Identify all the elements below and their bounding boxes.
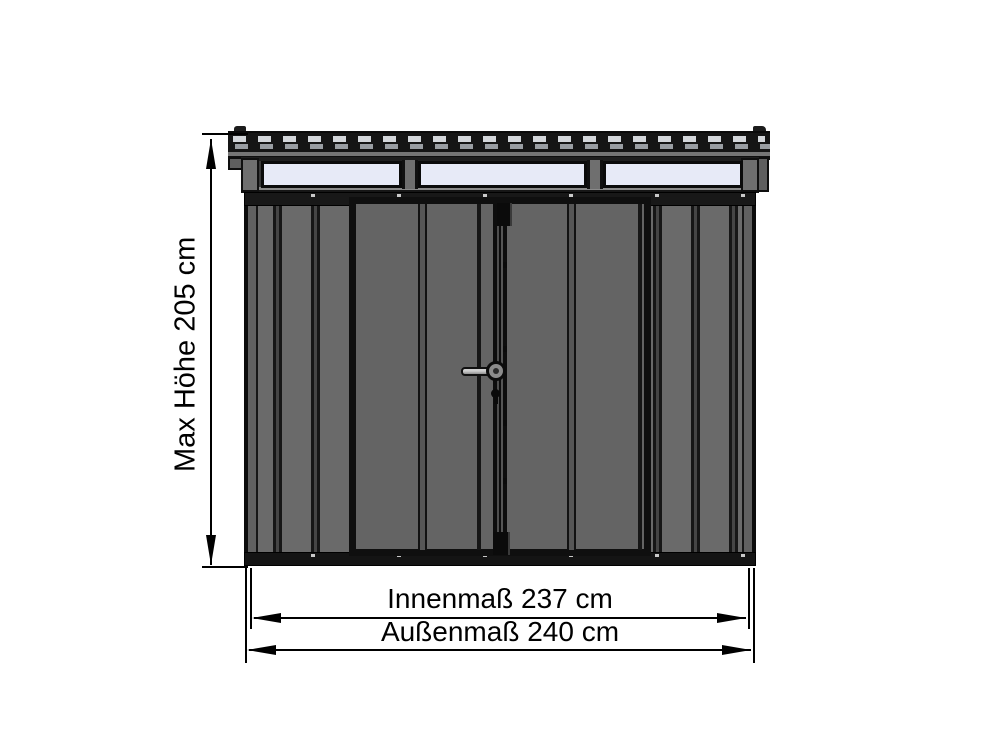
outer-width-extension-right: [753, 568, 755, 663]
door-groove-left-leaf: [418, 204, 427, 550]
height-extension-line-bottom: [202, 566, 248, 568]
door-hinge-pin: [503, 262, 507, 268]
door-groove-left-inner: [477, 204, 481, 550]
inner-width-label: Innenmaß 237 cm: [340, 584, 660, 614]
shed-dimension-diagram: Max Höhe 205 cm Innenmaß 237 cm Außenmaß…: [0, 0, 1000, 750]
skylight-window-3: [603, 161, 743, 188]
arrowhead-left-icon: [247, 645, 276, 655]
door-handle-rosette: [486, 361, 506, 381]
corrugated-roof: [228, 131, 770, 160]
door-hinge-pin: [503, 420, 507, 426]
height-dimension-line: [210, 139, 212, 565]
door-groove-right-leaf: [567, 204, 576, 550]
door-bottom-bolt: [493, 532, 510, 555]
skylight-window-2: [418, 161, 587, 188]
skylight-window-1: [261, 161, 402, 188]
height-extension-line-top: [202, 133, 248, 135]
door-hinge-pin: [503, 478, 507, 484]
door-top-bolt: [497, 203, 512, 226]
outer-width-label: Außenmaß 240 cm: [340, 617, 660, 647]
skylight-mullion-2: [587, 160, 603, 189]
arrowhead-up-icon: [206, 139, 216, 169]
skylight-mullion-1: [402, 160, 418, 189]
skylight-post-left: [241, 158, 259, 192]
keyhole-icon: [491, 389, 500, 398]
max-height-label: Max Höhe 205 cm: [168, 237, 204, 471]
outer-width-dimension-line: [249, 649, 751, 651]
arrowhead-right-icon: [722, 645, 751, 655]
arrowhead-left-icon: [252, 613, 281, 623]
arrowhead-down-icon: [206, 535, 216, 565]
wall-corner-left: [244, 206, 260, 552]
door-groove-right-inner: [638, 204, 642, 550]
inner-width-extension-right: [748, 568, 750, 629]
arrowhead-right-icon: [717, 613, 746, 623]
skylight-post-right: [741, 158, 759, 192]
wall-corner-right: [740, 206, 756, 552]
door-hinge-pin: [503, 346, 507, 352]
